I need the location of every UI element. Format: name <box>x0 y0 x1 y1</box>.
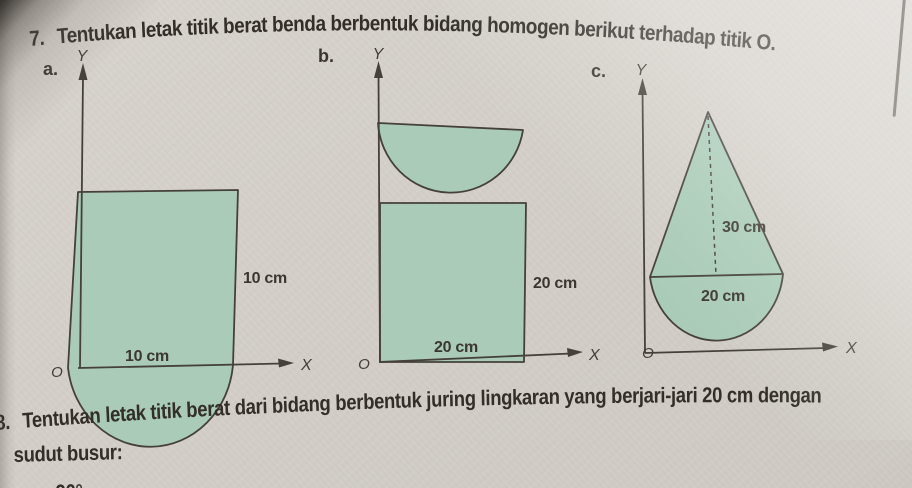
problem-8-line2: sudut busur: <box>13 441 122 467</box>
figure-a-bottom-dimension: 10 cm <box>125 348 169 365</box>
x-axis-arrow-icon <box>567 348 583 357</box>
origin-label: O <box>642 345 654 362</box>
y-axis-arrow-icon <box>374 61 383 78</box>
figure-a-side-dimension: 10 cm <box>243 270 287 287</box>
figure-c-label: c. <box>591 61 606 81</box>
y-axis-arrow-icon <box>638 78 647 95</box>
figure-b-label: b. <box>318 46 334 66</box>
problem-8-number: 8. <box>0 411 11 436</box>
y-axis <box>643 90 646 353</box>
y-axis-arrow-icon <box>79 63 88 80</box>
figure-a-label: a. <box>43 59 58 79</box>
origin-label: O <box>358 356 370 373</box>
downward-semicircle <box>378 123 523 193</box>
problem-8-text: Tentukan letak titik berat dari bidang b… <box>22 384 822 433</box>
figure-a: a. Y X O 10 cm 10 cm <box>35 45 305 390</box>
x-axis-label: X <box>845 340 858 357</box>
item-a-value: 90° <box>55 481 83 488</box>
figure-b-side-dimension: 20 cm <box>533 275 577 292</box>
figure-b-bottom-dimension: 20 cm <box>434 339 478 356</box>
figure-c: c. Y X O 30 cm 20 cm <box>585 40 912 375</box>
figure-b: b. Y X O 20 cm 20 cm <box>310 35 610 380</box>
x-axis-arrow-icon <box>822 343 838 352</box>
y-axis-label: Y <box>373 46 385 63</box>
item-a-label: a. <box>17 482 32 488</box>
y-axis-label: Y <box>77 48 89 65</box>
origin-label: O <box>51 364 63 381</box>
x-axis-arrow-icon <box>278 359 294 368</box>
y-axis <box>379 75 381 363</box>
y-axis-label: Y <box>636 62 648 79</box>
textbook-page-photo: 7. Tentukan letak titik berat benda berb… <box>0 0 912 488</box>
problem-8-block: 8. Tentukan letak titik berat dari bidan… <box>0 380 912 488</box>
problem-8-item-a-partial: a. 90° <box>17 481 83 488</box>
x-axis <box>645 348 826 353</box>
problem-8-line1: 8. Tentukan letak titik berat dari bidan… <box>0 384 821 435</box>
figure-c-height-dimension: 30 cm <box>722 219 766 236</box>
figure-c-base-dimension: 20 cm <box>701 288 745 305</box>
